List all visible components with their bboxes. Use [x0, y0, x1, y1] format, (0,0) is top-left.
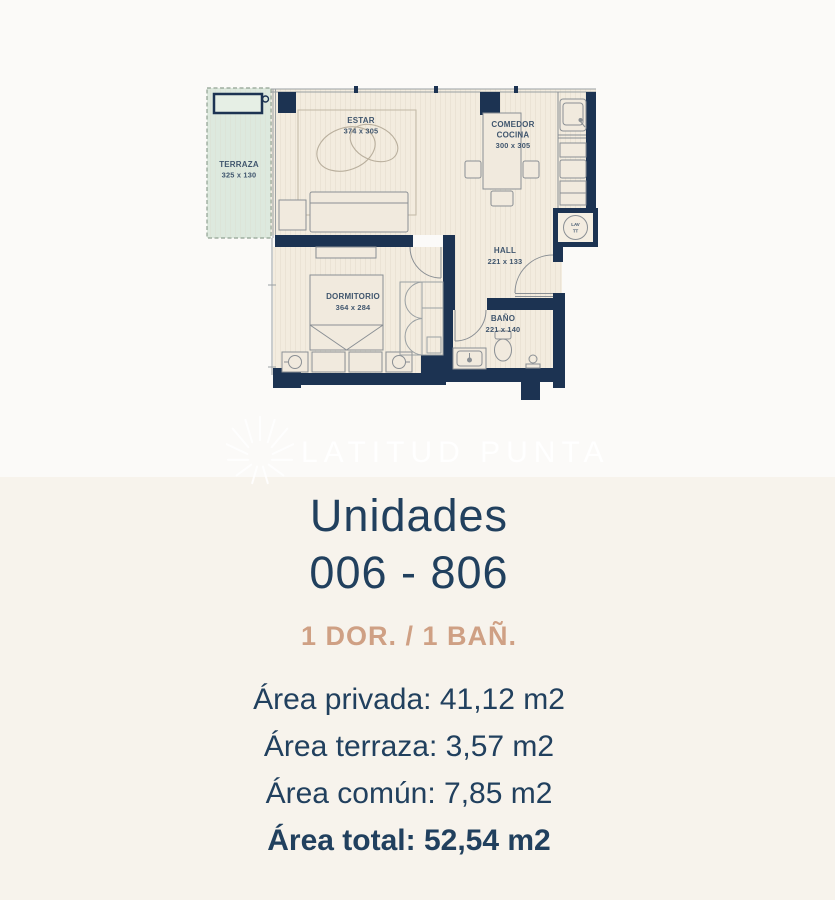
dresser [316, 247, 376, 258]
terrace-planter [214, 94, 262, 113]
hall-bath-wall [487, 298, 553, 310]
terraza-label: TERRAZA [219, 160, 259, 169]
side-table [279, 200, 306, 230]
unit-range: 006 - 806 [0, 544, 818, 601]
washer-icon [564, 216, 588, 240]
sink-icon [468, 358, 472, 362]
right-wall [586, 92, 596, 213]
area-comun-line: Área común: 7,85 m2 [0, 770, 818, 817]
bano-label: BAÑO [491, 314, 515, 323]
lav-label-line2: TT [573, 229, 579, 234]
bath-bottom-wall [443, 368, 565, 382]
area-total-value: 52,54 m2 [424, 824, 551, 857]
estar-dims: 374 x 305 [344, 127, 379, 136]
dormitorio-label: DORMITORIO [326, 292, 380, 301]
area-total-line: Área total: 52,54 m2 [0, 817, 818, 864]
floor-plan: LAV TT [203, 75, 613, 425]
hall-label: HALL [494, 246, 516, 255]
comedor-dims: 300 x 305 [496, 141, 531, 150]
sofa [310, 192, 408, 232]
area-privada-value: 41,12 m2 [440, 683, 565, 716]
flyer-page: LAV TT [0, 0, 835, 900]
terraza-dims: 325 x 130 [222, 171, 257, 180]
estar-dorm-wall [275, 235, 413, 247]
bed [310, 275, 383, 350]
kitchen-counter [558, 92, 586, 208]
unit-config: 1 DOR. / 1 BAÑ. [0, 621, 818, 652]
area-terraza-label: Área terraza: [264, 730, 437, 763]
chair-icon [465, 161, 481, 178]
lav-label-line1: LAV [571, 222, 580, 227]
area-terraza-line: Área terraza: 3,57 m2 [0, 723, 818, 770]
area-total-label: Área total: [267, 824, 415, 857]
sunburst-icon [221, 413, 299, 491]
cooktop-icon [560, 160, 586, 178]
comedor-label-line2: COCINA [497, 131, 530, 140]
chair-icon [491, 191, 513, 206]
area-comun-value: 7,85 m2 [444, 777, 552, 810]
hall-dims: 221 x 133 [488, 257, 523, 266]
bano-dims: 221 x 140 [486, 325, 521, 334]
estar-label: ESTAR [347, 116, 375, 125]
column-estar [278, 92, 296, 113]
dormitorio-dims: 364 x 284 [336, 303, 371, 312]
area-list: Área privada: 41,12 m2 Área terraza: 3,5… [0, 676, 818, 864]
laundry-closet: LAV TT [556, 211, 596, 245]
watermark: LATITUD PUNTA [0, 413, 835, 491]
area-privada-label: Área privada: [253, 683, 431, 716]
chair-icon [523, 161, 539, 178]
area-comun-label: Área común: [266, 777, 436, 810]
dorm-hall-wall [443, 235, 455, 310]
unit-title: Unidades [0, 487, 818, 544]
area-privada-line: Área privada: 41,12 m2 [0, 676, 818, 723]
comedor-label-line1: COMEDOR [491, 120, 534, 129]
column-comedor [480, 92, 500, 115]
area-terraza-value: 3,57 m2 [446, 730, 554, 763]
watermark-text: LATITUD PUNTA [301, 436, 610, 470]
unit-details: Unidades 006 - 806 1 DOR. / 1 BAÑ. Área … [0, 487, 835, 864]
